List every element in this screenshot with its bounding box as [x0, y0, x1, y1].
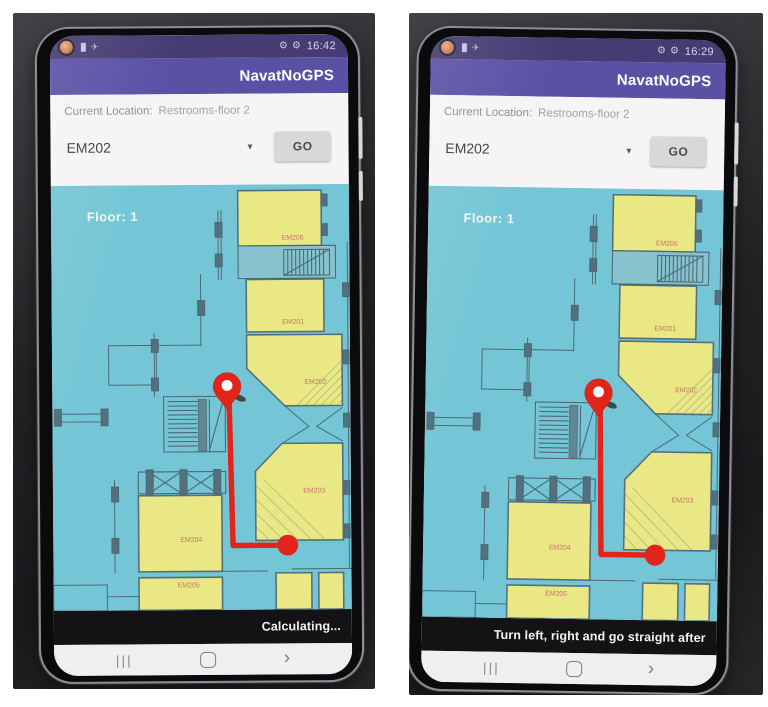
- status-bar: ✈ ⚙ ⚙ 16:42: [50, 34, 348, 59]
- instruction-text: Turn left, right and go straight after: [494, 628, 706, 645]
- current-location-value: Restrooms-floor 2: [158, 105, 249, 118]
- app-bar: NavatNoGPS: [50, 57, 348, 95]
- page-canvas: ✈ ⚙ ⚙ 16:42 NavatNoGPS Current Location:…: [0, 0, 768, 707]
- map-area: [51, 184, 352, 611]
- instruction-bar: Turn left, right and go straight after: [421, 617, 716, 656]
- destination-dropdown[interactable]: EM202 ▾: [443, 136, 633, 163]
- instruction-text: Calculating...: [262, 619, 341, 634]
- chevron-down-icon: ▾: [247, 141, 252, 152]
- app-bar: NavatNoGPS: [430, 59, 726, 100]
- back-button-icon[interactable]: ›: [648, 659, 655, 678]
- instruction-bar: Calculating...: [54, 609, 352, 645]
- form-area: Current Location:Restrooms-floor 2 EM202…: [429, 95, 725, 191]
- destination-dropdown[interactable]: EM202 ▾: [64, 135, 254, 160]
- floor-map[interactable]: [51, 184, 352, 611]
- status-time: 16:29: [685, 45, 714, 57]
- current-location-label: Current Location:: [64, 105, 152, 118]
- phone-left: ✈ ⚙ ⚙ 16:42 NavatNoGPS Current Location:…: [37, 27, 363, 682]
- app-title: NavatNoGPS: [617, 71, 712, 89]
- gear-icon: ⚙: [279, 40, 288, 51]
- gear-icon: ⚙: [657, 45, 666, 56]
- airplane-mode-icon: ✈: [91, 42, 99, 53]
- recents-button-icon[interactable]: |||: [483, 659, 500, 675]
- battery-icon: [81, 43, 86, 52]
- phone-right: ✈ ⚙ ⚙ 16:29 NavatNoGPS Current Location:…: [409, 28, 736, 694]
- phone-screen: ✈ ⚙ ⚙ 16:42 NavatNoGPS Current Location:…: [50, 34, 352, 676]
- photo-right: ✈ ⚙ ⚙ 16:29 NavatNoGPS Current Location:…: [409, 13, 763, 695]
- home-button-icon[interactable]: [200, 651, 216, 667]
- volume-button: [358, 117, 362, 159]
- airplane-mode-icon: ✈: [472, 42, 480, 53]
- app-title: NavatNoGPS: [239, 67, 334, 85]
- map-area: [422, 186, 724, 622]
- photo-left: ✈ ⚙ ⚙ 16:42 NavatNoGPS Current Location:…: [13, 13, 375, 689]
- back-button-icon[interactable]: ›: [284, 648, 290, 667]
- destination-selected: EM202: [445, 140, 490, 157]
- floor-map[interactable]: [422, 186, 724, 622]
- go-button[interactable]: GO: [275, 131, 331, 161]
- current-location-label: Current Location:: [444, 106, 532, 119]
- chevron-down-icon: ▾: [626, 145, 631, 156]
- status-time: 16:42: [307, 40, 336, 52]
- android-nav-bar: ||| ›: [421, 651, 716, 687]
- gear-icon: ⚙: [292, 40, 301, 51]
- gear-icon: ⚙: [670, 45, 679, 56]
- power-button: [733, 177, 737, 207]
- go-button[interactable]: GO: [650, 136, 706, 167]
- home-button-icon[interactable]: [566, 660, 582, 676]
- volume-button: [734, 123, 739, 165]
- battery-icon: [462, 43, 467, 52]
- front-camera: [441, 41, 454, 54]
- power-button: [359, 171, 363, 201]
- front-camera: [60, 41, 73, 54]
- current-location-value: Restrooms-floor 2: [538, 107, 630, 120]
- android-nav-bar: ||| ›: [54, 643, 352, 676]
- destination-selected: EM202: [66, 140, 110, 156]
- form-area: Current Location:Restrooms-floor 2 EM202…: [50, 93, 349, 186]
- recents-button-icon[interactable]: |||: [116, 652, 133, 668]
- phone-screen: ✈ ⚙ ⚙ 16:29 NavatNoGPS Current Location:…: [421, 36, 726, 687]
